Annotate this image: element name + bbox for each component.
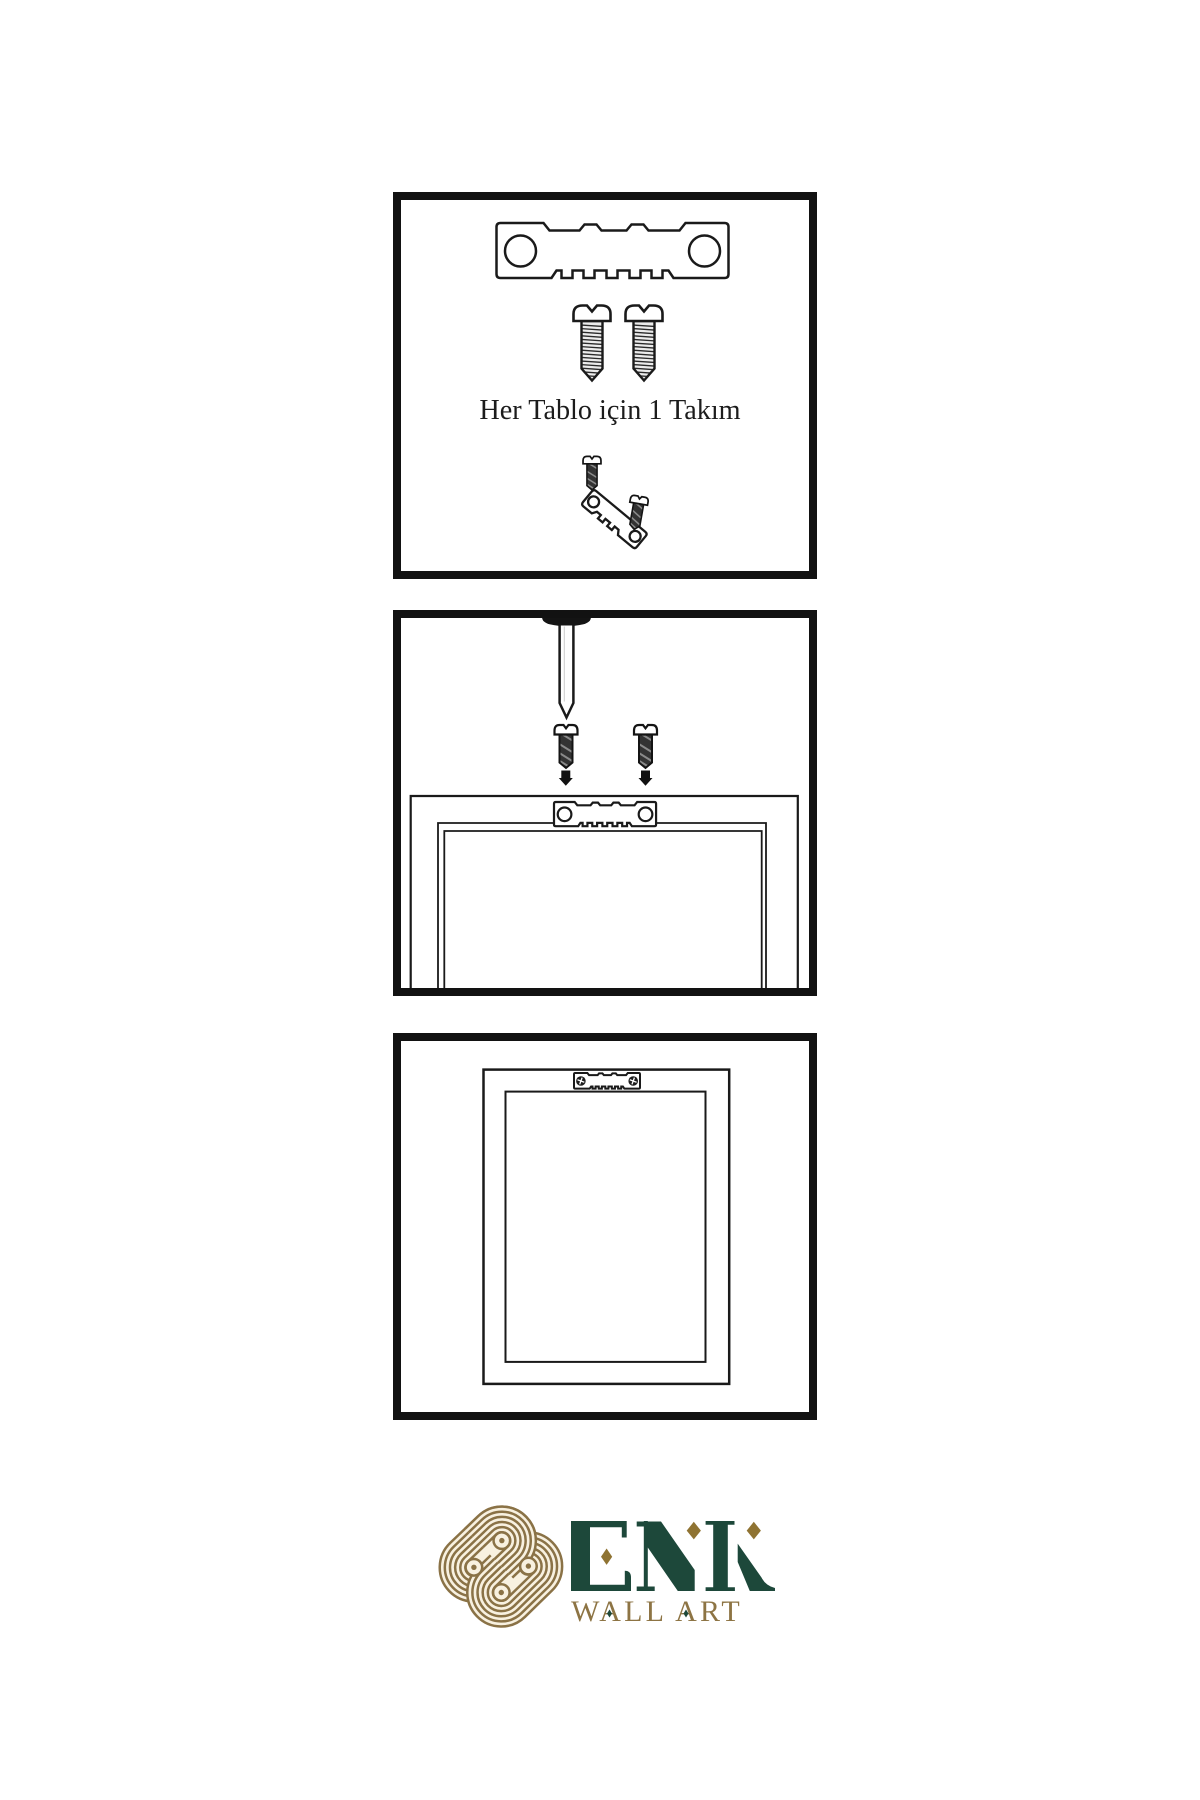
svg-text:Her Tablo için 1 Takım: Her Tablo için 1 Takım [479, 395, 740, 426]
svg-text:WALL ART: WALL ART [571, 1595, 743, 1628]
